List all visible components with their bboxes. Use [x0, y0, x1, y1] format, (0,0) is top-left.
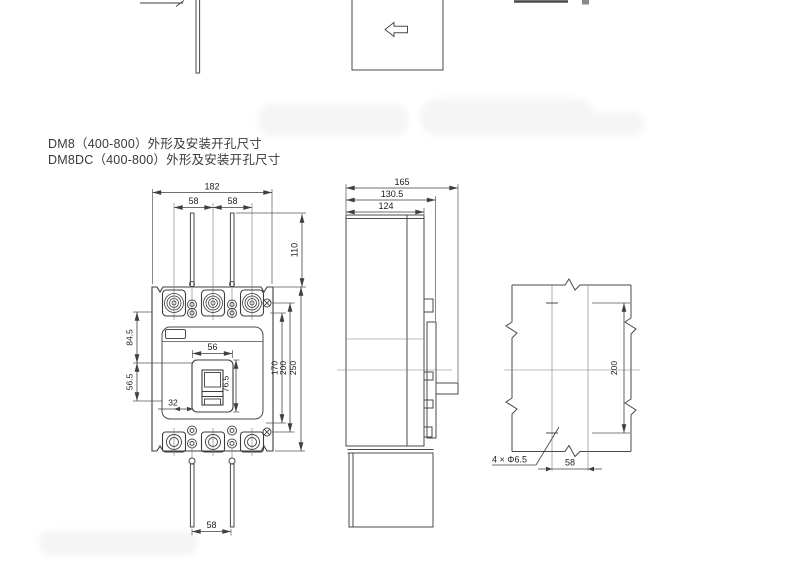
watermark — [38, 98, 644, 555]
terminal-bar-fragment — [196, 0, 200, 73]
dim-depth-total: 165 — [394, 177, 409, 187]
top-fragment-panel — [352, 0, 443, 70]
hole-centerlines — [504, 285, 640, 471]
dim-cover-mid: 56.5 — [125, 373, 135, 390]
top-fragment-left — [140, 0, 200, 73]
dim-depth-front: 130.5 — [381, 189, 404, 199]
interpole-screws-top — [188, 300, 237, 318]
dim-hole-rows: 200 — [609, 361, 619, 375]
top-terminal-bars — [190, 213, 235, 287]
arrow-left-icon — [385, 23, 408, 37]
side-view: 165 130.5 124 — [337, 177, 458, 527]
side-extension-lines — [346, 184, 458, 382]
dim-handle-window-height: 76.5 — [221, 375, 231, 392]
dim-pole-pitch-right: 58 — [227, 196, 237, 206]
dim-height-mounting: 200 — [278, 361, 288, 375]
dim-height-total: 250 — [288, 361, 298, 375]
dim-depth-case: 124 — [378, 201, 393, 211]
nameplate — [166, 330, 186, 339]
drill-view: 200 58 4 × Φ6.5 — [492, 279, 640, 471]
hole-callout: 4 × Φ6.5 — [492, 455, 527, 465]
interpole-screws-bottom — [188, 426, 237, 448]
side-front-features — [424, 299, 458, 438]
page: DM8（400-800）外形及安装开孔尺寸 DM8DC（400-800）外形及安… — [0, 0, 790, 583]
dim-handle-offset: 32 — [168, 398, 178, 408]
dim-total-width: 182 — [204, 182, 219, 192]
side-toggle-handle — [436, 383, 458, 394]
front-view: 182 58 58 110 84.5 56.5 56 76.5 32 170 2… — [125, 182, 307, 536]
dim-handle-window-width: 56 — [207, 342, 217, 352]
bottom-terminal-pads — [163, 428, 264, 456]
dim-terminal-extension: 110 — [290, 243, 300, 257]
side-body — [346, 215, 424, 446]
top-fragment-right — [514, 0, 589, 5]
drill-dimension-lines — [538, 303, 624, 471]
dim-bottom-terminal-pitch: 58 — [206, 520, 216, 530]
technical-drawing: 182 58 58 110 84.5 56.5 56 76.5 32 170 2… — [0, 0, 790, 583]
dim-cover-top: 84.5 — [125, 329, 135, 346]
bottom-terminal-bars — [189, 448, 235, 527]
dim-pole-pitch-left: 58 — [188, 196, 198, 206]
dim-hole-cols: 58 — [565, 458, 575, 468]
side-base — [348, 450, 434, 528]
